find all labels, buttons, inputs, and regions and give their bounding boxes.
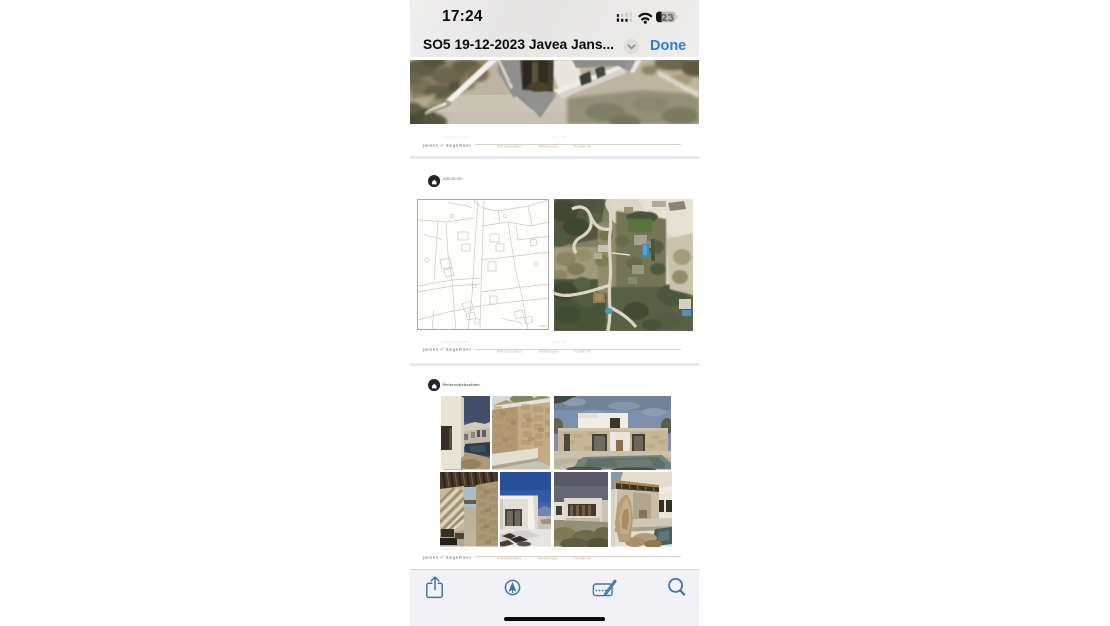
svg-text:1:2000: 1:2000 [539,325,547,328]
